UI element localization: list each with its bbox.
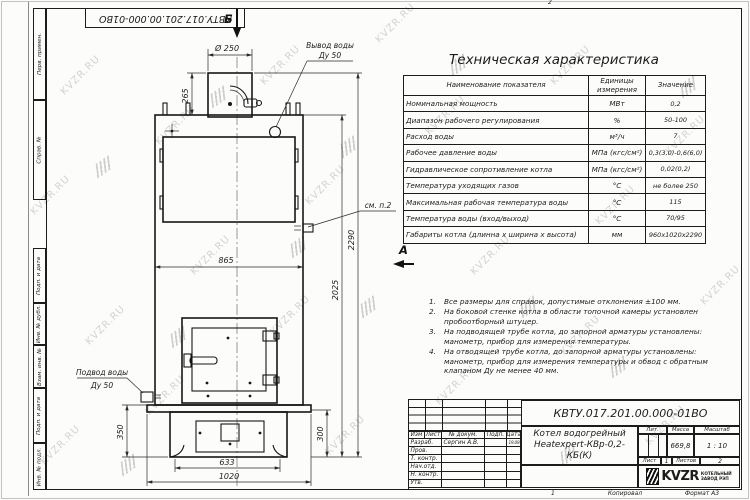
- bolt-dot: [227, 337, 230, 340]
- note-item: 4.На отводящей трубе котла, до запорной …: [429, 347, 709, 375]
- boiler-drawing: Б А Ø 250 265 865 2290 2025 350 300 633 …: [50, 5, 415, 490]
- bolt-dot: [229, 443, 232, 446]
- table-row: Температура воды (вход/выход)°С70/95: [404, 210, 706, 226]
- staff-date: 19.09.24: [507, 439, 521, 447]
- note-item: 1.Все размеры для справок, допустимые от…: [429, 297, 709, 306]
- note-number: 3.: [429, 327, 444, 346]
- param-name: Расход воды: [404, 128, 589, 144]
- sheets-value: 2: [700, 457, 740, 465]
- staff-sign: [485, 439, 507, 447]
- staff-name: [442, 480, 485, 488]
- margin-cell-sprav-no: Справ. №: [33, 100, 46, 200]
- damper-lever-arc: [230, 86, 248, 104]
- title-block: Изм Лист № докум. Подп. Дата Разраб. Сер…: [408, 399, 742, 490]
- param-unit: МПа (кгс/см²): [589, 145, 646, 161]
- dim-300: 300: [316, 426, 325, 441]
- note-number: 1.: [429, 297, 444, 306]
- param-name: Максимальная рабочая температура воды: [404, 194, 589, 210]
- doc-number: КВТУ.017.201.00.000-01ВО: [521, 400, 740, 426]
- bolt-dot: [206, 382, 209, 385]
- col-header-list: Лист: [425, 431, 442, 439]
- title-block-staff-rows: Разраб. Сергин А.В. 19.09.24 Пров. Т. ко…: [409, 439, 521, 488]
- base-stand: [170, 412, 287, 457]
- param-unit: МВт: [589, 96, 646, 112]
- product-name-line2: Heatexpert-КВр-0,2-КБ(К): [522, 440, 637, 462]
- col-header-data: Дата: [507, 431, 521, 439]
- sheet-label: Лист: [638, 457, 661, 465]
- param-unit: %: [589, 112, 646, 128]
- inlet-label-line2: Ду 50: [90, 381, 113, 390]
- see-note-label: см. п.2: [365, 201, 392, 210]
- product-name: Котел водогрейный Heatexpert-КВр-0,2-КБ(…: [521, 426, 638, 465]
- boiler-contours: [141, 73, 313, 457]
- staff-name: Сергин А.В.: [442, 439, 485, 447]
- base-foot-curve: [273, 445, 287, 457]
- margin-label: Инв. № подл.: [37, 447, 43, 486]
- dim-1020: 1020: [219, 472, 239, 481]
- sampling-fitting: [303, 224, 313, 232]
- bolt-dot: [249, 382, 252, 385]
- staff-role: Т. контр.: [409, 455, 442, 463]
- table-row: Диапазон рабочего регулирования%50-100: [404, 112, 706, 128]
- section-mark-a: А: [398, 243, 408, 257]
- section-arrowhead-a: [393, 260, 404, 268]
- table-row: Максимальная рабочая температура воды°С1…: [404, 194, 706, 210]
- scale-value: 1 : 10: [694, 434, 740, 457]
- dim-2025: 2025: [331, 280, 340, 300]
- bolt-dot: [249, 395, 252, 398]
- col-header-izm: Изм: [409, 431, 425, 439]
- damper-pivot: [228, 102, 232, 106]
- logo-subtitle: КОТЕЛЬНЫЙ ЗАВОД РЭП: [701, 472, 732, 482]
- grid-line: [442, 400, 443, 431]
- col-header-podp: Подп.: [485, 431, 507, 439]
- staff-date: [507, 463, 521, 471]
- staff-role: Утв.: [409, 480, 442, 488]
- param-name: Температура уходящих газов: [404, 177, 589, 193]
- margin-cell-inv-dubl: Инв. № дубл.: [33, 303, 46, 345]
- panel-hinge: [160, 196, 163, 209]
- margin-cell-podp-data2: Подп. и дата: [33, 388, 46, 443]
- margin-label: Взам. инв. №: [37, 348, 43, 386]
- lifting-lug: [296, 103, 300, 115]
- param-unit: °С: [589, 194, 646, 210]
- table-row: Габариты котла (длинна х ширина х высота…: [404, 227, 706, 243]
- staff-sign: [485, 480, 507, 488]
- margin-label: Справ. №: [37, 136, 43, 163]
- section-mark-b: Б: [224, 12, 233, 26]
- staff-role: Пров.: [409, 447, 442, 455]
- note-number: 2.: [429, 307, 444, 326]
- drawing-sheet: KVZR.RU KVZR.RU KVZR.RU KVZR.RU KVZR.RU …: [0, 0, 750, 500]
- binding-edge-line: [28, 2, 29, 496]
- dim-diameter-250: Ø 250: [214, 43, 239, 53]
- note-item: 3.На подводящей трубе котла, до запорной…: [429, 327, 709, 346]
- sheet-value: 1: [661, 457, 672, 465]
- margin-cell-podp-data1: Подп. и дата: [33, 248, 46, 303]
- margin-label: Перв. примен.: [37, 33, 43, 75]
- water-outlet-port: [270, 127, 281, 138]
- lifting-lug: [163, 103, 167, 115]
- dim-865: 865: [218, 256, 233, 265]
- empty-cell: [521, 465, 638, 488]
- panel-hinge: [160, 149, 163, 162]
- staff-date: [507, 455, 521, 463]
- revision-grid: [409, 400, 521, 431]
- leader-lines: [77, 61, 396, 393]
- lit-label: Лит.: [638, 426, 667, 434]
- param-unit: МПа (кгс/см²): [589, 161, 646, 177]
- staff-sign: [485, 455, 507, 463]
- logo-text: KVZR: [661, 469, 699, 484]
- margin-cell-vzam-inv: Взам. инв. №: [33, 345, 46, 388]
- staff-role: Разраб.: [409, 439, 442, 447]
- mass-value: 669,8: [667, 434, 694, 457]
- param-unit: м³/ч: [589, 128, 646, 144]
- grid-line: [485, 400, 486, 431]
- param-unit: °С: [589, 177, 646, 193]
- bolt-dot: [207, 395, 210, 398]
- param-unit: мм: [589, 227, 646, 243]
- water-inlet-port: [141, 392, 153, 402]
- staff-role: Нач.отд.: [409, 463, 442, 471]
- ash-opening: [196, 421, 264, 452]
- margin-cell-inv-podl: Инв. № подл.: [33, 443, 46, 490]
- margin-label: Подп. и дата: [37, 256, 43, 294]
- note-item: 2.На боковой стенке котла в области топо…: [429, 307, 709, 326]
- param-name: Рабочее давление воды: [404, 145, 589, 161]
- table-row: Гидравлическое сопротивление котлаМПа (к…: [404, 161, 706, 177]
- notes-list: 1.Все размеры для справок, допустимые от…: [429, 297, 709, 377]
- staff-name: [442, 463, 485, 471]
- format-label: Формат А3: [672, 490, 732, 497]
- outlet-label-line2: Ду 50: [318, 51, 341, 60]
- param-value: 70/95: [646, 210, 706, 226]
- mass-label: Масса: [667, 426, 694, 434]
- staff-sign: [485, 472, 507, 480]
- table-row: Рабочее давление водыМПа (кгс/см²)0,3(3,…: [404, 145, 706, 161]
- staff-role: Н. контр.: [409, 472, 442, 480]
- table-row: Температура уходящих газов°Сне более 250: [404, 177, 706, 193]
- inlet-label-line1: Подвод воды: [76, 368, 128, 377]
- sheets-label: Листов: [672, 457, 700, 465]
- param-name: Номинальная мощность: [404, 96, 589, 112]
- fold-mark-bottom: 1: [551, 490, 555, 497]
- param-value: 115: [646, 194, 706, 210]
- param-value: 0,02(0,2): [646, 161, 706, 177]
- ash-door: [221, 424, 239, 441]
- param-unit: °С: [589, 210, 646, 226]
- grid-line: [425, 400, 426, 431]
- company-logo: KVZR КОТЕЛЬНЫЙ ЗАВОД РЭП: [638, 465, 740, 488]
- outlet-label-line1: Вывод воды: [306, 41, 354, 50]
- panel-hinge: [295, 149, 298, 162]
- param-value: 0,3(3,0)-0,6(6,0): [646, 145, 706, 161]
- title-block-right-section: КВТУ.017.201.00.000-01ВО Котел водогрейн…: [521, 400, 740, 488]
- grid-line: [507, 400, 508, 431]
- staff-name: [442, 472, 485, 480]
- bolt-dot: [259, 432, 262, 435]
- spec-header-value: Значение: [646, 76, 706, 96]
- margin-label: Подп. и дата: [37, 396, 43, 434]
- dim-265: 265: [181, 88, 190, 103]
- param-value: 50-100: [646, 112, 706, 128]
- spec-table-header-row: Наименование показателя Единицы измерени…: [404, 76, 706, 96]
- logo-icon: [646, 468, 659, 485]
- spec-header-units: Единицы измерения: [589, 76, 646, 96]
- lit-cells: [638, 434, 667, 457]
- param-name: Гидравлическое сопротивление котла: [404, 161, 589, 177]
- note-text: Все размеры для справок, допустимые откл…: [444, 297, 681, 306]
- fold-mark-top: 2: [548, 0, 552, 6]
- param-value: 0,2: [646, 96, 706, 112]
- note-text: На отводящей трубе котла, до запорной ар…: [444, 347, 709, 375]
- dim-2290: 2290: [347, 230, 356, 250]
- title-block-header-row: Изм Лист № докум. Подп. Дата: [409, 431, 521, 439]
- staff-date: [507, 447, 521, 455]
- dim-633: 633: [219, 458, 234, 467]
- note-text: На подводящей трубе котла, до запорной а…: [444, 327, 709, 346]
- upper-panel: [163, 137, 295, 222]
- staff-sign: [485, 447, 507, 455]
- col-header-docum: № докум.: [442, 431, 485, 439]
- lifting-lug: [186, 103, 190, 115]
- logo-subtitle-line2: ЗАВОД РЭП: [701, 476, 729, 481]
- param-value: 7: [646, 128, 706, 144]
- margin-label: Инв. № дубл.: [37, 305, 43, 343]
- damper-handle: [244, 99, 257, 107]
- staff-date: [507, 472, 521, 480]
- note-number: 4.: [429, 347, 444, 375]
- param-name: Диапазон рабочего регулирования: [404, 112, 589, 128]
- cross-mark-dot: [171, 130, 174, 133]
- base-foot-curve: [170, 445, 184, 457]
- staff-date: [507, 480, 521, 488]
- param-name: Габариты котла (длинна х ширина х высота…: [404, 227, 589, 243]
- table-row: Расход водым³/ч7: [404, 128, 706, 144]
- param-value: 960х1020х2290: [646, 227, 706, 243]
- staff-sign: [485, 463, 507, 471]
- spec-table-title: Техническая характеристика: [403, 52, 705, 68]
- margin-cell-perv-primen: Перв. примен.: [33, 8, 46, 100]
- section-arrowhead-b: [233, 28, 241, 38]
- dim-350: 350: [116, 424, 125, 439]
- staff-name: [442, 447, 485, 455]
- param-value: не более 250: [646, 177, 706, 193]
- scale-label: Масштаб: [694, 426, 740, 434]
- panel-hinge: [295, 196, 298, 209]
- table-row: Номинальная мощностьМВт0,2: [404, 96, 706, 112]
- spec-header-name: Наименование показателя: [404, 76, 589, 96]
- spec-table: Наименование показателя Единицы измерени…: [403, 75, 706, 244]
- product-name-line1: Котел водогрейный: [533, 429, 625, 440]
- param-name: Температура воды (вход/выход): [404, 210, 589, 226]
- note-text: На боковой стенке котла в области топочн…: [444, 307, 709, 326]
- staff-name: [442, 455, 485, 463]
- copied-label: Копировал: [595, 490, 655, 497]
- dimension-texts: Ø 250 265 865 2290 2025 350 300 633 1020: [116, 43, 356, 481]
- bottom-plate: [147, 405, 311, 412]
- bolt-dot: [199, 432, 202, 435]
- door-handle: [190, 357, 217, 364]
